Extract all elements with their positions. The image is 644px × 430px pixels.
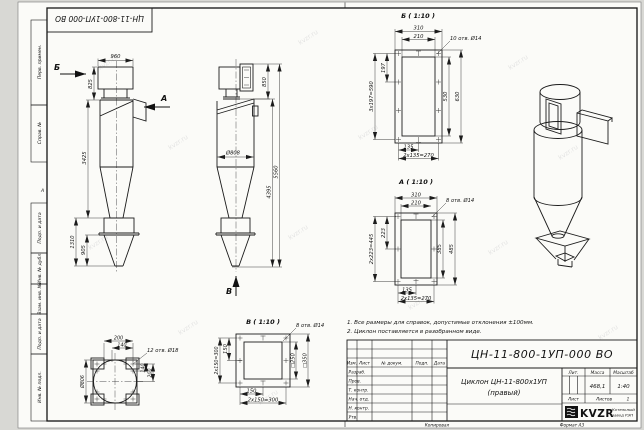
row-label: Пров.	[349, 379, 362, 385]
note-line: 2. Циклон поставляется в разобранном вид…	[347, 329, 482, 335]
sheets-label: Листов	[595, 397, 613, 403]
sheets-value: 1	[627, 397, 630, 403]
drawing-sheet: kvzr.ru kvzr.ru kvzr.ru kvzr.ru kvzr.ru …	[0, 0, 644, 430]
dim-label: 5560	[274, 165, 280, 179]
view-arrow-v: В	[226, 287, 232, 296]
company-name: Котельный	[612, 407, 635, 412]
col-header: Подп.	[415, 361, 428, 367]
scale-value: 1:40	[617, 384, 630, 390]
dim-label: 150	[223, 343, 229, 354]
dim-label: 850	[262, 76, 268, 87]
margin-label: Подп. и дата	[37, 212, 43, 243]
row-label: Т. контр.	[349, 388, 369, 394]
dim-label: 385	[437, 243, 443, 254]
holes-label: 8 отв. Ø14	[296, 322, 324, 329]
corner-doc-number: ЦН-11-800-1УП-000 ВО	[55, 14, 144, 23]
dim-label: 200	[148, 368, 154, 377]
dim-label: 825	[88, 78, 94, 89]
company-name: завод РЭП	[612, 413, 633, 418]
dim-label: 960	[111, 54, 122, 60]
sheet-label: Лист	[567, 397, 579, 403]
lit-label: Лит.	[568, 370, 579, 376]
row-label: Утв.	[349, 415, 358, 421]
section-title: А ( 1:10 )	[398, 178, 433, 186]
mass-value: 468,1	[590, 384, 606, 390]
dim-label: 135	[402, 288, 413, 294]
dim-label: 135	[404, 145, 415, 151]
mass-label: Масса	[591, 370, 605, 376]
margin-label: Инв. № подл.	[37, 371, 43, 403]
dim-label: 2х135=270	[401, 296, 432, 302]
dim-label: 310	[411, 193, 422, 199]
margin-label: Инв. № дубл.	[37, 252, 43, 283]
dim-label: 140	[117, 343, 126, 349]
col-header: Лист	[358, 361, 370, 367]
dim-label: 3х197=590	[369, 81, 375, 112]
dim-label: 3425	[82, 151, 88, 165]
view-arrow-b: Б	[54, 63, 60, 72]
doc-number: ЦН-11-800-1УП-000 ВО	[471, 348, 613, 361]
margin-label: Взам. инв. №	[37, 283, 43, 314]
dim-label: □350	[303, 352, 309, 368]
row-label: Разраб.	[349, 370, 366, 376]
dim-label: 485	[449, 243, 455, 254]
dim-label: 4395	[267, 185, 273, 199]
copy-label: Копировал	[425, 423, 450, 429]
dim-label: Ø806	[79, 375, 86, 389]
format-label: Формат А3	[560, 423, 585, 429]
note-line: 1. Все размеры для справок, допустимые о…	[347, 320, 534, 326]
zone-label: А	[40, 188, 44, 194]
margin-label: Перв. примен.	[37, 45, 43, 80]
section-title: Б ( 1:10 )	[401, 12, 435, 20]
row-label: Н. контр.	[349, 406, 370, 412]
dim-label: 2х135=270	[403, 153, 434, 159]
dim-label: 1310	[70, 235, 76, 249]
dim-label: 210	[414, 34, 425, 40]
dim-label: 150	[247, 389, 258, 395]
dim-label: □250	[291, 352, 297, 368]
row-label: Нач. отд.	[349, 397, 370, 403]
holes-label: 8 отв. Ø14	[446, 197, 474, 204]
dim-label: 310	[414, 26, 425, 32]
col-header: Дата	[433, 361, 445, 367]
view-arrow-a: А	[160, 94, 167, 103]
margin-label: Подп. и дата	[37, 318, 43, 349]
dim-label: 630	[455, 91, 461, 102]
paper	[18, 2, 641, 428]
dim-label: 200	[114, 336, 123, 342]
dim-label: 140	[141, 363, 147, 372]
holes-label: 12 отв. Ø18	[147, 347, 179, 354]
dim-label: 905	[81, 244, 87, 255]
dim-label: 223	[381, 228, 387, 238]
dim-label: 2х150=300	[214, 346, 220, 374]
dim-label: 530	[443, 91, 449, 102]
dim-label: 2х223=445	[369, 233, 375, 264]
dim-label: 197	[381, 62, 387, 73]
margin-label: Справ. №	[37, 122, 43, 145]
col-header: Изм.	[347, 361, 357, 367]
logo-text: KVZR	[580, 408, 614, 420]
holes-label: 10 отв. Ø14	[450, 35, 482, 42]
section-title: В ( 1:10 )	[246, 318, 280, 326]
scale-label: Масштаб	[613, 370, 634, 376]
col-header: № докум.	[380, 361, 402, 367]
dim-label: Ø808	[225, 150, 241, 157]
dim-label: 210	[411, 201, 422, 207]
dim-label: 2х150=300	[248, 398, 279, 404]
part-title: (правый)	[488, 389, 521, 397]
part-title: Циклон ЦН-11-800х1УП	[461, 378, 548, 386]
